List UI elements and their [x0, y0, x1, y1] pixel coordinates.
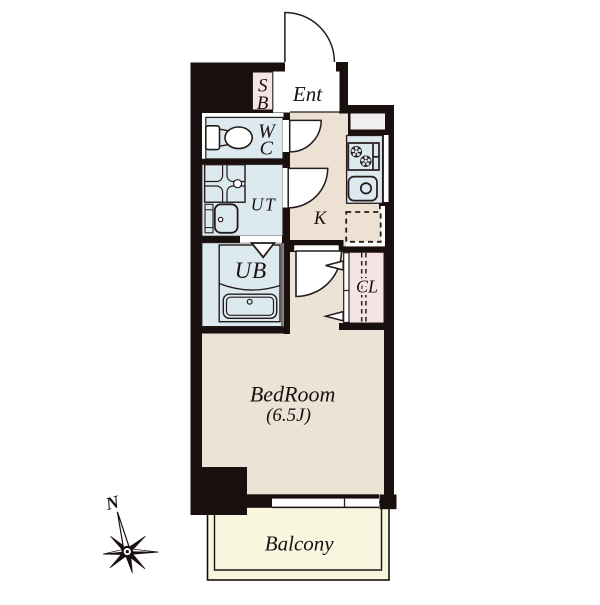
svg-text:(6.5J): (6.5J) [266, 405, 311, 426]
svg-text:Balcony: Balcony [265, 532, 334, 556]
svg-text:C: C [260, 137, 274, 159]
svg-text:CL: CL [356, 276, 378, 296]
svg-text:UT: UT [251, 195, 277, 215]
svg-text:B: B [257, 93, 269, 114]
svg-text:K: K [313, 209, 328, 229]
svg-text:UB: UB [235, 258, 267, 283]
svg-text:BedRoom: BedRoom [250, 382, 336, 407]
svg-text:Ent: Ent [292, 82, 323, 106]
